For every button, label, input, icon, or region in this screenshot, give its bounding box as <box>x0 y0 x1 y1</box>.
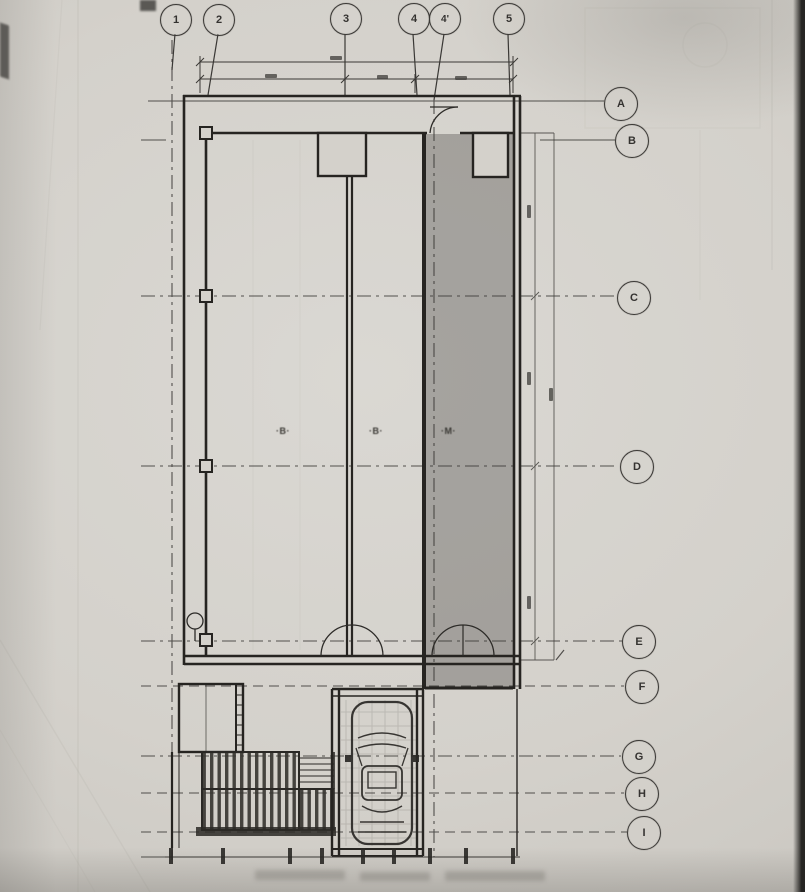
grid-bubble-C: C <box>617 281 651 315</box>
grid-bubble-2: 2 <box>203 4 235 36</box>
photo-edge-artifact <box>140 0 156 11</box>
photo-edge-shadow <box>793 0 805 892</box>
staircase <box>172 752 336 848</box>
grid-bubble-4-prime: 4' <box>429 3 461 35</box>
top-dimension-lines <box>196 56 518 93</box>
plan-linework <box>0 0 805 892</box>
floor-plan-photo: 1 2 3 4 4' 5 /* fix: bubble 5 binds belo… <box>0 0 805 892</box>
grid-bubble-H: H <box>625 777 659 811</box>
grid-bubble-I: I <box>627 816 661 850</box>
car-plan-symbol <box>345 702 419 844</box>
grid-bubble-E: E <box>622 625 656 659</box>
grid-bubble-3: 3 <box>330 3 362 35</box>
annex-room <box>179 684 243 752</box>
shaded-zone <box>425 134 513 688</box>
room-mark: ·M· <box>441 426 456 436</box>
wall-notches <box>318 133 508 177</box>
grid-bubble-D: D <box>620 450 654 484</box>
grid-bubble-5: 5 <box>493 3 525 35</box>
grid-bubble-4: 4 <box>398 3 430 35</box>
grid-bubble-1: 1 <box>160 4 192 36</box>
grid-bubble-F: F <box>625 670 659 704</box>
caption-smudge <box>360 872 430 881</box>
grid-bubble-G: G <box>622 740 656 774</box>
axis-leaders <box>172 34 510 100</box>
caption-smudge <box>255 870 345 880</box>
grid-bubble-A: A <box>604 87 638 121</box>
caption-smudge <box>445 871 545 881</box>
photo-edge-artifact <box>0 23 9 80</box>
room-mark: ·B· <box>369 426 383 436</box>
grid-bubble-B: B <box>615 124 649 158</box>
room-mark: ·B· <box>276 426 290 436</box>
